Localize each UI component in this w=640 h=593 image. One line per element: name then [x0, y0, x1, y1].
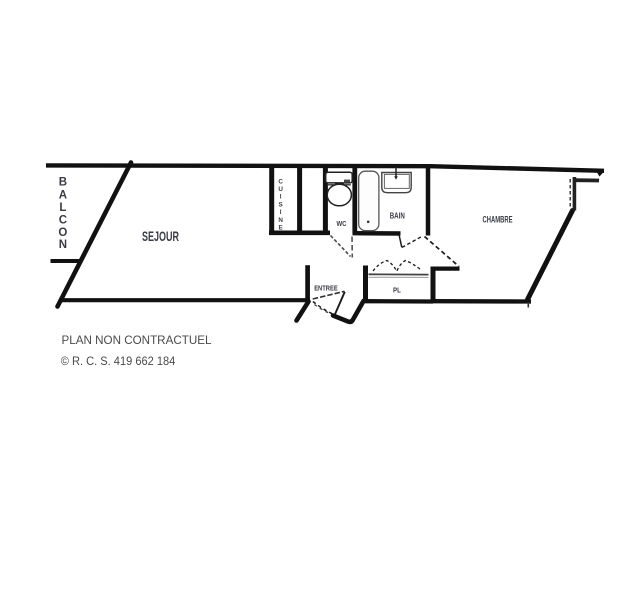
svg-text:N: N: [278, 217, 283, 224]
svg-text:C: C: [59, 215, 67, 227]
svg-text:U: U: [278, 186, 283, 193]
svg-text:PLAN NON CONTRACTUEL: PLAN NON CONTRACTUEL: [62, 333, 212, 347]
svg-text:© R. C. S. 419 662 184: © R. C. S. 419 662 184: [61, 354, 176, 368]
svg-text:SEJOUR: SEJOUR: [142, 228, 179, 244]
svg-text:BAIN: BAIN: [390, 212, 405, 221]
svg-text:N: N: [59, 239, 67, 251]
svg-text:I: I: [280, 209, 282, 216]
svg-text:E: E: [278, 225, 282, 232]
svg-text:B: B: [59, 177, 67, 189]
svg-text:O: O: [58, 227, 67, 239]
svg-text:A: A: [59, 190, 67, 202]
svg-text:S: S: [278, 201, 282, 208]
svg-text:WC: WC: [337, 221, 347, 228]
svg-text:ENTREE: ENTREE: [314, 283, 338, 292]
svg-text:L: L: [59, 202, 66, 214]
svg-text:PL: PL: [393, 286, 401, 295]
svg-text:CHAMBRE: CHAMBRE: [483, 214, 513, 224]
svg-text:C: C: [278, 178, 283, 185]
svg-text:I: I: [280, 194, 282, 201]
